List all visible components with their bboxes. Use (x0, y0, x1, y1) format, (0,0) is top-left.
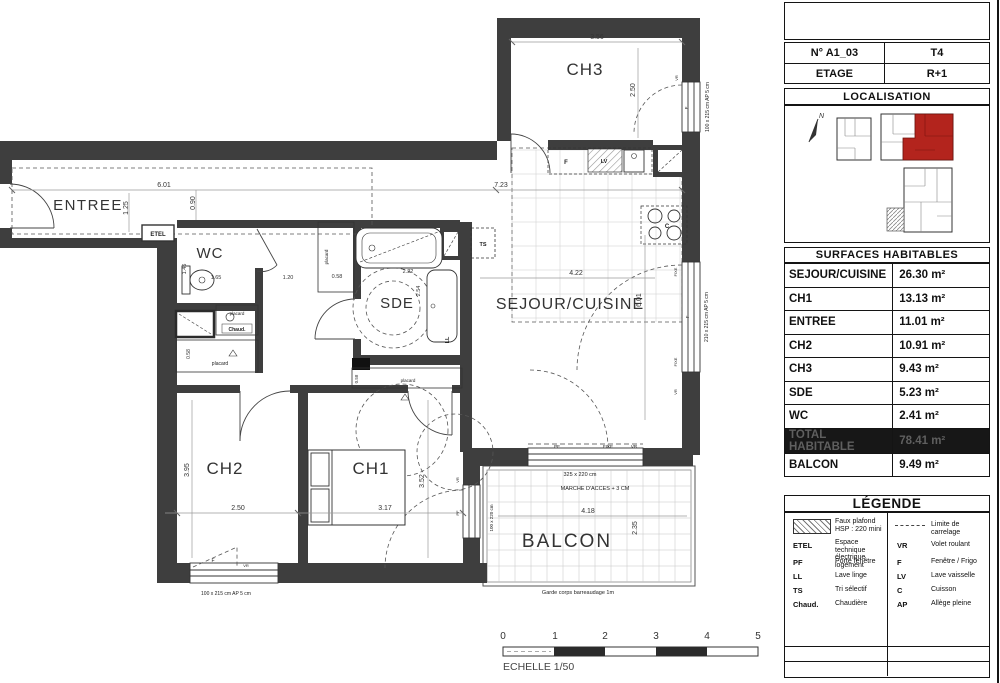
placard-ch1: placard (401, 378, 416, 383)
dim-ch3-h: 2.50 (630, 83, 637, 97)
window-label-balcon-left: 100 x 220 cm (489, 504, 494, 531)
fixe-sejour-bottom: FIXE (673, 357, 678, 366)
chaud-label: Chaud. (229, 327, 247, 333)
legend-empty-row-line (785, 646, 989, 647)
fridge-label: F (564, 160, 568, 166)
f-window-sejour: F (685, 315, 690, 318)
legend-desc: Lave linge (835, 572, 893, 580)
legend-desc: Chaudière (835, 600, 893, 608)
legend-key: TS (793, 586, 803, 595)
dim-plac1: 0.58 (332, 274, 343, 280)
surface-value: 9.43 m² (893, 358, 989, 381)
legend-desc: Faux plafond (835, 518, 893, 526)
table-row: CH39.43 m² (785, 358, 989, 382)
surface-label: SDE (785, 382, 893, 405)
unit-type: T4 (885, 43, 989, 63)
scale-tick-1: 1 (552, 631, 558, 642)
legend-key: PF (793, 558, 803, 567)
dim-ch2-w: 2.50 (231, 505, 245, 512)
legend-key: LL (793, 572, 802, 581)
ts-label: TS (479, 242, 486, 248)
dim-wc-h: 1.46 (182, 264, 188, 275)
scale-tick-5: 5 (755, 631, 761, 642)
dim-sde-w: 2.22 (403, 269, 414, 275)
mini-plan-left (837, 118, 871, 160)
table-row: BALCON9.49 m² (785, 454, 989, 477)
pf-ch1: PF (455, 510, 460, 516)
dim-ch1-h: 3.52 (419, 474, 426, 488)
faux-plafond-swatch (793, 519, 831, 534)
f-window-ch3: F (684, 106, 689, 109)
table-row: SEJOUR/CUISINE26.30 m² (785, 264, 989, 288)
surfaces-header: SURFACES HABITABLES (784, 247, 990, 263)
table-row: CH210.91 m² (785, 335, 989, 359)
surface-value: 5.23 m² (893, 382, 989, 405)
vr-ch3: VR (674, 75, 679, 81)
scale-bar: 0 1 2 3 4 5 ECHELLE 1/50 (500, 631, 761, 673)
ll-label: LL (445, 336, 451, 343)
balcony (483, 466, 695, 586)
marche-acces-label: MARCHE D'ACCES + 3 CM (561, 486, 630, 492)
fixe-balcon: FIXE (603, 444, 613, 449)
surface-label: SEJOUR/CUISINE (785, 264, 893, 287)
room-label-wc: WC (197, 245, 224, 262)
room-label-sejour: SEJOUR/CUISINE (496, 296, 644, 313)
surface-value: 10.91 m² (893, 335, 989, 358)
legend-desc: Limite de carrelage (931, 521, 989, 536)
mini-plan-highlighted (881, 114, 953, 160)
legend-desc: Porte fenêtre (835, 558, 893, 566)
dim-balc-w: 4.18 (581, 508, 595, 515)
dim-sej-h: 6.01 (636, 293, 643, 307)
table-row-total: TOTAL HABITABLE78.41 m² (785, 429, 989, 454)
etel-label: ETEL (150, 232, 166, 238)
surface-label: CH1 (785, 288, 893, 311)
room-label-balcon: BALCON (522, 531, 612, 552)
dim-plac2: 0.58 (186, 349, 192, 359)
dim-sde-h: 2.54 (416, 286, 422, 297)
placard-low: placard (212, 361, 229, 367)
surface-label: WC (785, 405, 893, 428)
surface-value: 11.01 m² (893, 311, 989, 334)
surfaces-table: SEJOUR/CUISINE26.30 m² CH113.13 m² ENTRE… (784, 263, 990, 477)
legend-key: F (897, 558, 902, 567)
window-label-sejour: 210 x 215 cm AP 5 cm (704, 292, 710, 342)
dim-entree-h: 1.25 (123, 201, 130, 215)
floor-plan-sheet: ENTREE WC SDE CH3 SEJOUR/CUISINE CH2 CH1… (0, 0, 1000, 683)
legend-divider (887, 513, 888, 676)
localisation-header: LOCALISATION (784, 88, 990, 105)
legend-desc: Cuisson (931, 586, 989, 594)
window-label-ch3: 100 x 215 cm AP 5 cm (705, 82, 711, 132)
scale-tick-2: 2 (602, 631, 608, 642)
legend-desc: Volet roulant (931, 541, 989, 549)
f-window-ch2: F (211, 558, 214, 564)
dim-sej-w: 4.22 (569, 270, 583, 277)
floor-plan-drawing: ENTREE WC SDE CH3 SEJOUR/CUISINE CH2 CH1… (0, 0, 782, 683)
legend-key: LV (897, 572, 906, 581)
placard-hall: placard (324, 249, 329, 264)
vr-ch1-pf: VR (455, 477, 460, 483)
vr-right: VR (673, 389, 678, 395)
north-label: N (819, 113, 825, 120)
room-label-ch1: CH1 (352, 459, 389, 478)
legend-box: Faux plafond HSP : 220 mini ETEL Espace … (784, 512, 990, 678)
legend-empty-row-line (785, 661, 989, 662)
scale-tick-0: 0 (500, 631, 506, 642)
scale-tick-3: 3 (653, 631, 659, 642)
carrelage-dash-icon (895, 525, 925, 526)
surface-label: ENTREE (785, 311, 893, 334)
garde-corps-label: Garde corps barreaudage 1m (542, 590, 615, 596)
dim-ch1-w: 3.17 (378, 505, 392, 512)
legend-desc: HSP : 220 mini (835, 526, 893, 534)
floor-label: ETAGE (785, 64, 885, 83)
surface-value: 26.30 m² (893, 264, 989, 287)
dim-balc-h: 2.35 (632, 521, 639, 535)
sheet-right-border (997, 0, 999, 683)
room-label-sde: SDE (380, 295, 414, 312)
table-row: ENTREE11.01 m² (785, 311, 989, 335)
mini-plan-lower (887, 168, 952, 232)
legend-desc: Lave vaisselle (931, 572, 989, 580)
dim-ch3-w: 3.56 (590, 34, 604, 41)
dim-090: 0.90 (190, 196, 197, 210)
legend-key: C (897, 586, 902, 595)
table-row: WC2.41 m² (785, 405, 989, 429)
room-label-ch3: CH3 (566, 60, 603, 79)
surface-label: TOTAL HABITABLE (785, 429, 893, 453)
legend-key: VR (897, 541, 907, 550)
table-row: SDE5.23 m² (785, 382, 989, 406)
vr-balcon: VR (631, 444, 638, 449)
surface-value: 78.41 m² (893, 429, 989, 453)
unit-info-table: N° A1_03 T4 ETAGE R+1 (784, 42, 990, 84)
panel-blank-box (784, 2, 990, 40)
cuisson-label: C (665, 224, 670, 230)
legend-desc: Fenêtre / Frigo (931, 558, 989, 566)
pf-balcon: PF (554, 444, 560, 449)
surface-label: CH2 (785, 335, 893, 358)
lv-label: LV (601, 159, 608, 165)
scale-label: ECHELLE 1/50 (503, 661, 574, 673)
floor-value: R+1 (885, 64, 989, 83)
room-label-entree: ENTREE (53, 197, 123, 214)
placard-chaud: placard (230, 311, 245, 316)
dim-top-w: 7.23 (494, 182, 508, 189)
legend-key: AP (897, 600, 907, 609)
dim-plac3: 0.58 (354, 374, 359, 383)
balcon-size-label: 325 x 220 cm (563, 472, 596, 478)
surface-label: CH3 (785, 358, 893, 381)
legend-key: Chaud. (793, 600, 818, 609)
window-label-ch2: 100 x 215 cm AP 5 cm (201, 591, 251, 597)
vr-ch2: VR (243, 563, 249, 568)
fixe-sejour-top: FIXE (673, 267, 678, 276)
unit-number: N° A1_03 (785, 43, 885, 63)
north-arrow: N (809, 113, 825, 142)
surface-value: 9.49 m² (893, 454, 989, 477)
surface-label: BALCON (785, 454, 893, 477)
table-row: CH113.13 m² (785, 288, 989, 312)
scale-tick-4: 4 (704, 631, 710, 642)
room-label-ch2: CH2 (206, 459, 243, 478)
legend-desc: Tri sélectif (835, 586, 893, 594)
dim-hall-w: 1.20 (283, 275, 294, 281)
legend-header: LÉGENDE (784, 495, 990, 512)
dim-wc-w: 1.65 (211, 275, 222, 281)
dim-ch2-h: 3.95 (184, 463, 191, 477)
localisation-diagrams: N (785, 106, 988, 241)
legend-desc: Allège pleine (931, 600, 989, 608)
dim-entree-w: 6.01 (157, 182, 171, 189)
surface-value: 13.13 m² (893, 288, 989, 311)
localisation-box: N (784, 105, 990, 243)
legend-key: ETEL (793, 541, 812, 550)
surface-value: 2.41 m² (893, 405, 989, 428)
